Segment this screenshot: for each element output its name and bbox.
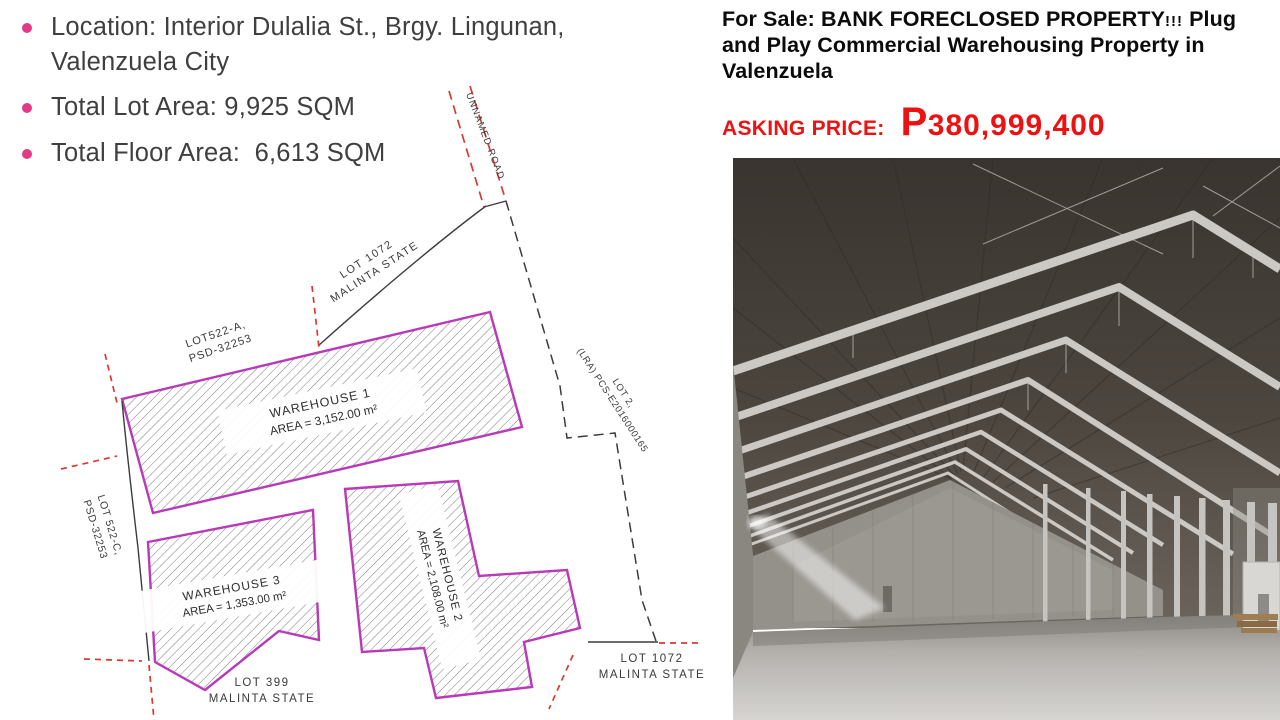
lot-1072-top-label: LOT 1072 MALINTA STATE — [320, 227, 421, 306]
headline-caps: BANK FORECLOSED PROPERTY — [821, 7, 1165, 31]
lot-522a-label: LOT522-A, PSD-32253 — [183, 318, 254, 365]
asking-price-line: ASKING PRICE: P 380,999,400 — [722, 100, 1262, 145]
list-item: Location: Interior Dulalia St., Brgy. Li… — [16, 10, 656, 79]
listing-header: For Sale: BANK FORECLOSED PROPERTY!!! Pl… — [722, 6, 1262, 145]
peso-symbol: P — [901, 100, 928, 145]
svg-text:LOT 1072: LOT 1072 — [621, 653, 684, 665]
lot-399-label: LOT 399 MALINTA STATE — [209, 677, 315, 705]
svg-text:(LRA) PCS-E2016000165: (LRA) PCS-E2016000165 — [574, 346, 650, 454]
property-facts-list: Location: Interior Dulalia St., Brgy. Li… — [16, 10, 656, 182]
price-value: 380,999,400 — [928, 109, 1106, 143]
property-photo — [733, 158, 1280, 720]
list-item: Total Floor Area: 6,613 SQM — [16, 136, 656, 171]
svg-text:LOT 399: LOT 399 — [234, 677, 289, 689]
svg-text:MALINTA STATE: MALINTA STATE — [599, 669, 705, 681]
list-item: Total Lot Area: 9,925 SQM — [16, 90, 656, 125]
floor-area-text: Total Floor Area: 6,613 SQM — [51, 136, 385, 171]
headline: For Sale: BANK FORECLOSED PROPERTY!!! Pl… — [722, 6, 1242, 85]
lot-2-label: LOT 2, (LRA) PCS-E2016000165 — [574, 339, 661, 454]
lot-1072-bottom-label: LOT 1072 MALINTA STATE — [599, 653, 705, 681]
bullet-icon — [22, 149, 32, 159]
lot-522c-label: LOT 522-C, PSD-32253 — [80, 493, 124, 561]
headline-exclamations: !!! — [1165, 13, 1183, 30]
bullet-icon — [22, 23, 32, 33]
for-sale-prefix: For Sale: — [722, 7, 815, 31]
slide: UNNAMED ROAD LOT 1072 MALINTA STATE LOT5… — [0, 0, 1280, 720]
location-text: Location: Interior Dulalia St., Brgy. Li… — [51, 10, 571, 79]
lot-area-text: Total Lot Area: 9,925 SQM — [51, 90, 355, 125]
bullet-icon — [22, 103, 32, 113]
svg-text:MALINTA STATE: MALINTA STATE — [209, 693, 315, 705]
asking-price-label: ASKING PRICE: — [722, 117, 885, 141]
